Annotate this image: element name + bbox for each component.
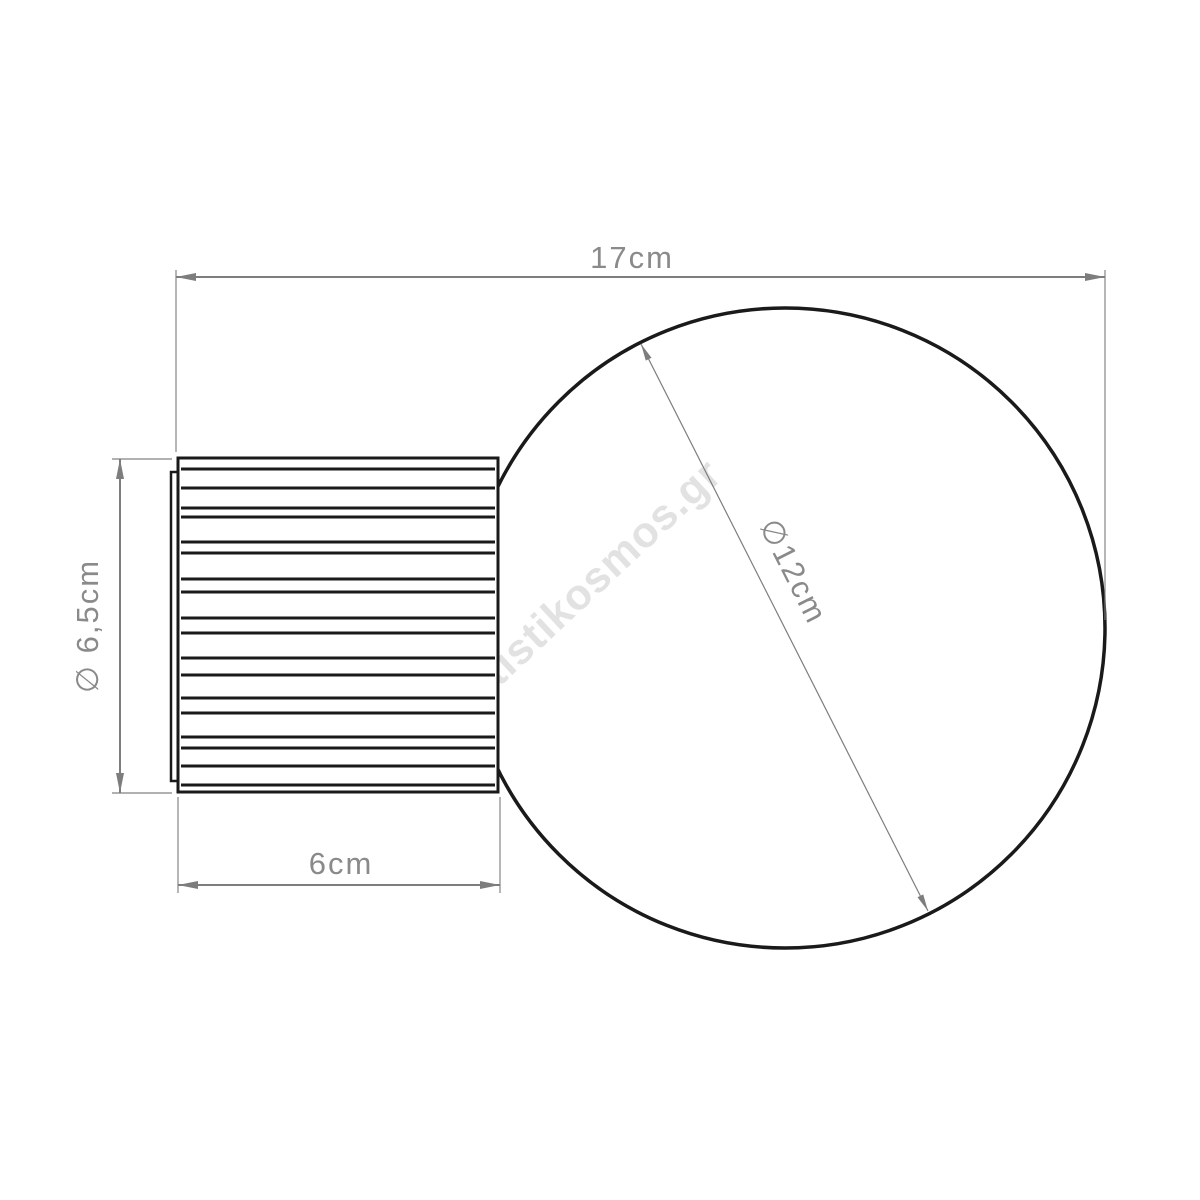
lamp-dimension-diagram: fotistikosmos.gr (0, 0, 1200, 1200)
base-diameter-dimension (112, 459, 172, 793)
globe-diameter-arrow-bottom (918, 894, 929, 911)
base-width-arrow-right (480, 881, 500, 889)
base-diameter-label: ∅ 6,5cm (70, 559, 105, 693)
globe-diameter-dimension (641, 344, 928, 911)
total-width-arrow-right (1085, 273, 1105, 281)
globe-diameter-dimension-line (641, 344, 928, 911)
base-width-label: 6cm (309, 846, 374, 881)
base-group (171, 458, 498, 792)
base-diameter-arrow-bottom (116, 773, 124, 793)
base-diameter-arrow-top (116, 459, 124, 479)
total-width-arrow-left (176, 273, 196, 281)
globe-diameter-arrow-top (641, 344, 652, 361)
base-width-arrow-left (178, 881, 198, 889)
technical-drawing-page: fotistikosmos.gr (0, 0, 1200, 1200)
globe-diameter-label: ∅12cm (752, 513, 834, 629)
total-width-label: 17cm (590, 240, 674, 275)
